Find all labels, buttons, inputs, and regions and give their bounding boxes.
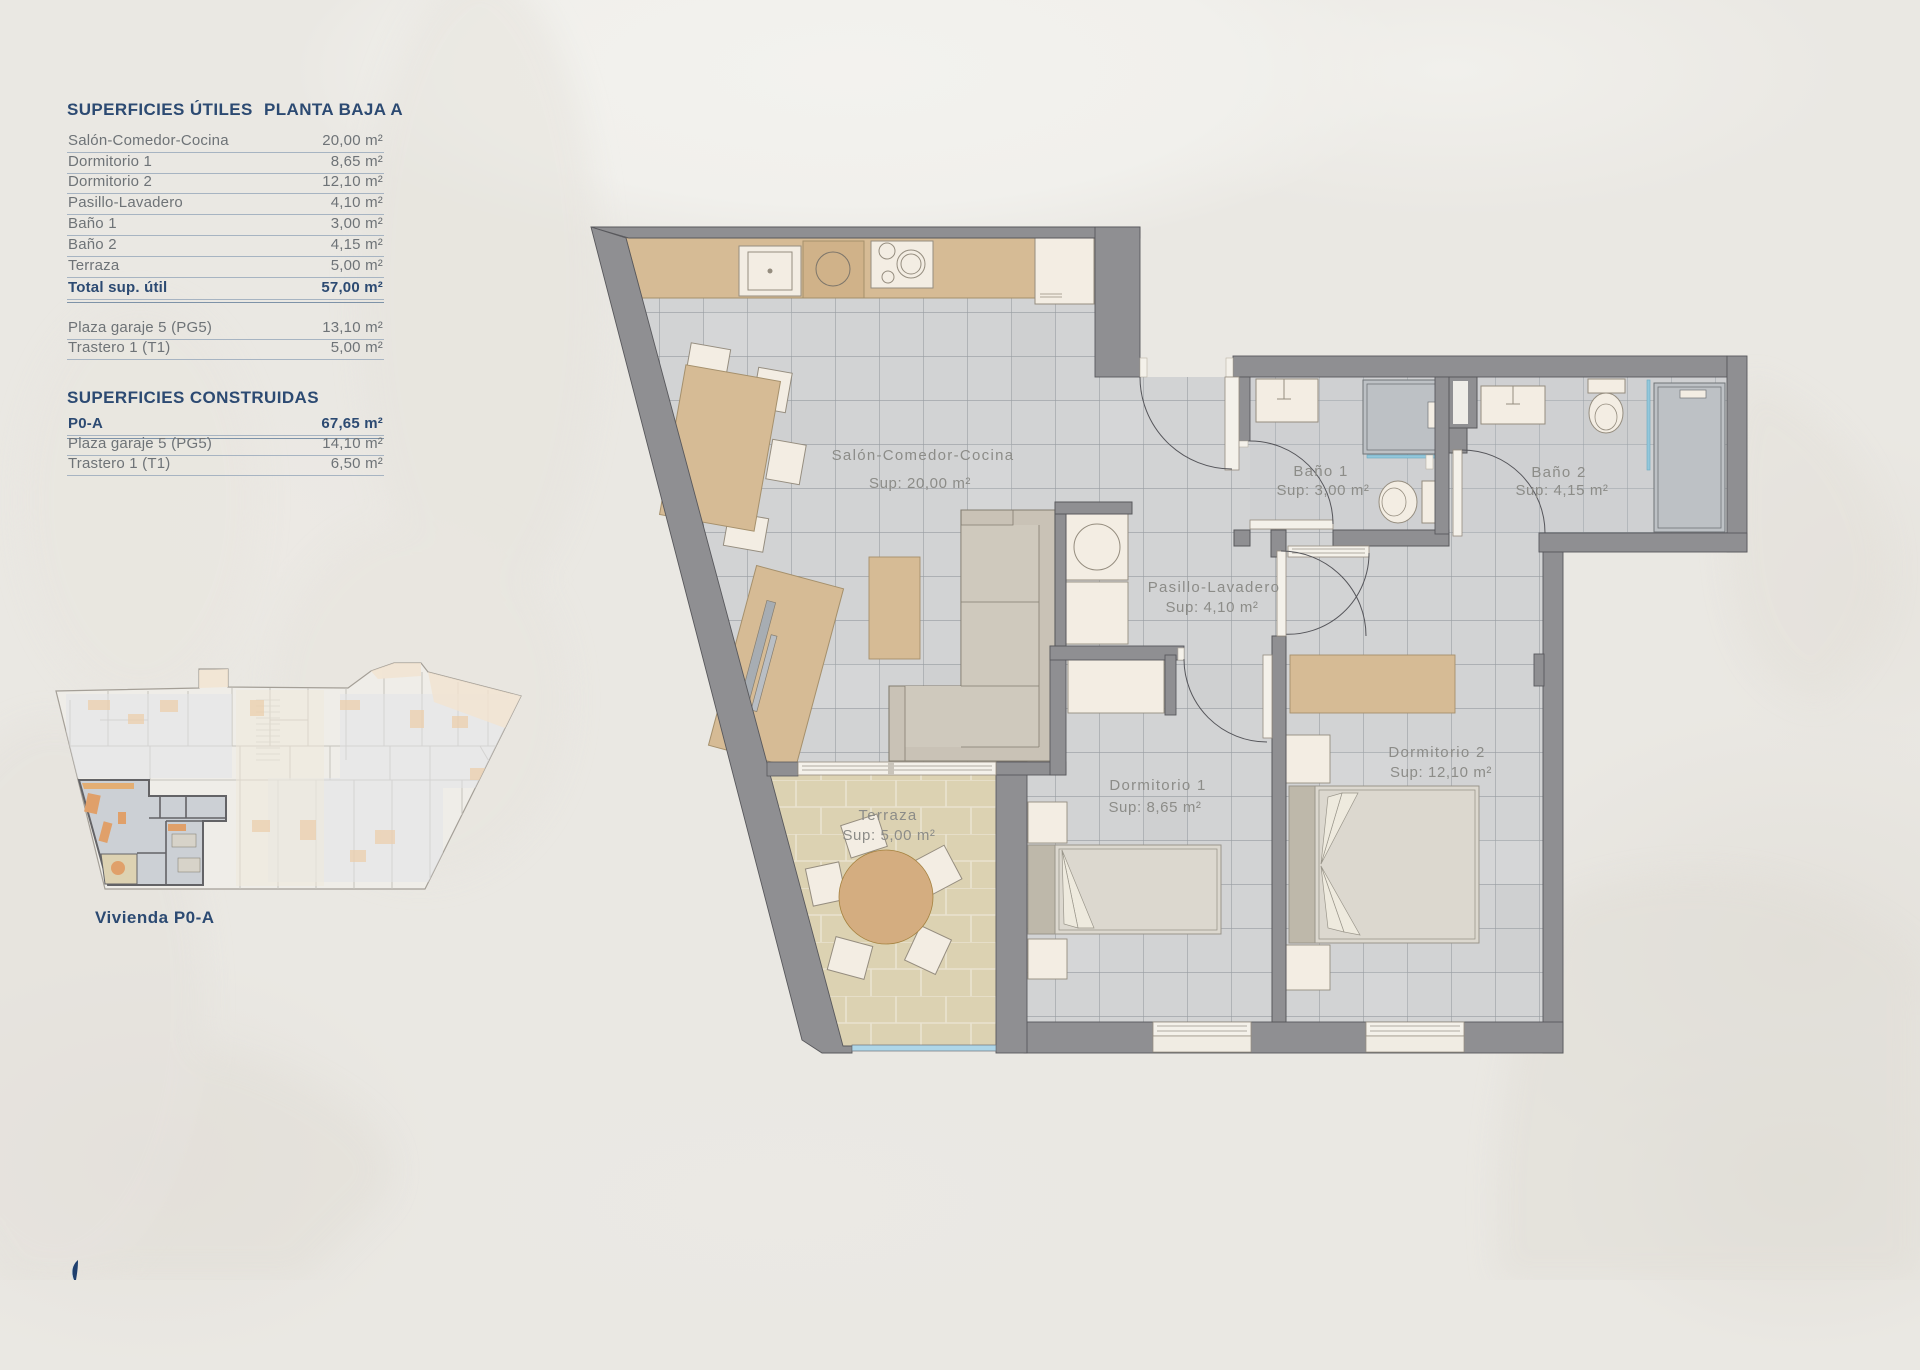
svg-text:Baño 1: Baño 1 <box>1293 463 1348 480</box>
svg-text:Sup: 4,15 m²: Sup: 4,15 m² <box>1515 482 1608 499</box>
svg-text:Terraza: Terraza <box>858 807 917 824</box>
svg-text:Sup: 4,10 m²: Sup: 4,10 m² <box>1165 599 1258 616</box>
svg-text:Dormitorio 1: Dormitorio 1 <box>1109 777 1206 794</box>
svg-text:Dormitorio 2: Dormitorio 2 <box>1388 744 1485 761</box>
svg-text:Sup: 5,00 m²: Sup: 5,00 m² <box>842 827 935 844</box>
svg-text:Salón-Comedor-Cocina: Salón-Comedor-Cocina <box>832 447 1015 464</box>
svg-text:Baño 2: Baño 2 <box>1531 464 1586 481</box>
svg-text:Pasillo-Lavadero: Pasillo-Lavadero <box>1148 579 1281 596</box>
svg-text:Sup: 8,65 m²: Sup: 8,65 m² <box>1108 799 1201 816</box>
svg-text:Sup: 20,00 m²: Sup: 20,00 m² <box>869 475 971 492</box>
svg-text:Sup: 12,10 m²: Sup: 12,10 m² <box>1390 764 1492 781</box>
svg-text:Sup: 3,00 m²: Sup: 3,00 m² <box>1276 482 1369 499</box>
